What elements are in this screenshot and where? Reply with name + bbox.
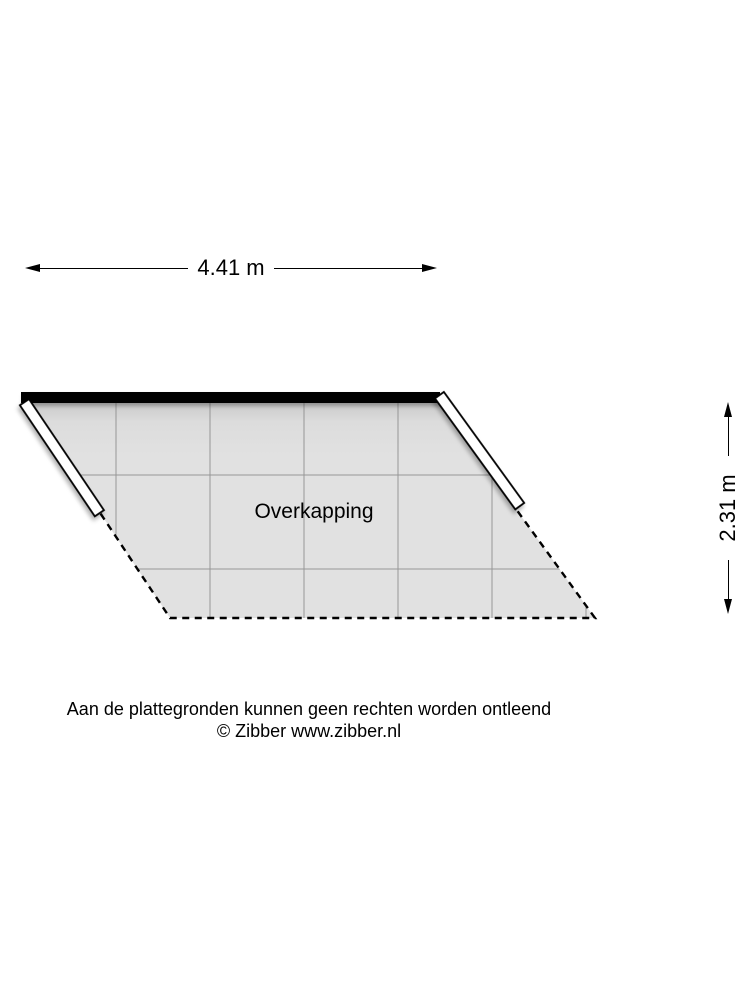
- dimension-depth: 2.31 m: [717, 402, 739, 614]
- floorplan-page: 4.41 m: [0, 0, 750, 1000]
- dimension-depth-label: 2.31 m: [717, 474, 739, 541]
- floorplan-drawing: [0, 0, 750, 1000]
- dimension-depth-line-bottom: [728, 560, 729, 599]
- footer-copyright: © Zibber www.zibber.nl: [0, 720, 618, 742]
- wall-solid: [21, 392, 440, 403]
- room-label: Overkapping: [254, 500, 373, 524]
- arrow-up-icon: [724, 402, 732, 417]
- footer: Aan de plattegronden kunnen geen rechten…: [0, 698, 618, 742]
- dimension-depth-label-wrap: 2.31 m: [717, 456, 739, 560]
- dimension-depth-line-top: [728, 417, 729, 456]
- arrow-down-icon: [724, 599, 732, 614]
- footer-disclaimer: Aan de plattegronden kunnen geen rechten…: [0, 698, 618, 720]
